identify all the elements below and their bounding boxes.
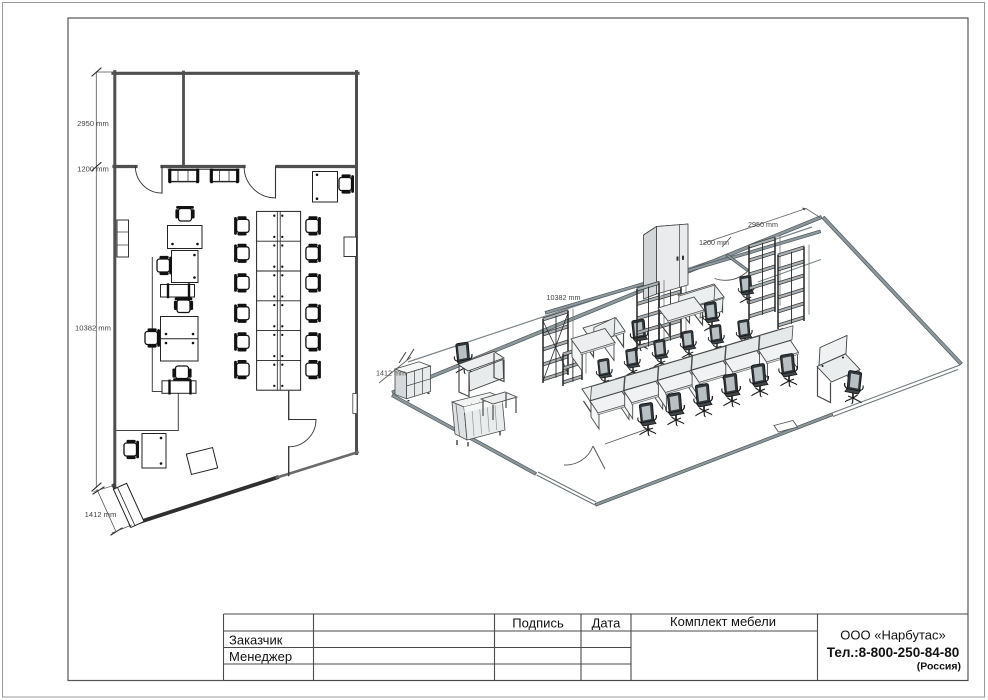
svg-text:Дата: Дата [592,616,622,631]
svg-text:Менеджер: Менеджер [229,649,292,664]
svg-text:Заказчик: Заказчик [229,633,283,648]
svg-text:ООО «Нарбутас»: ООО «Нарбутас» [840,628,945,643]
svg-text:10382 mm: 10382 mm [75,324,111,333]
svg-text:Комплект мебели: Комплект мебели [670,614,776,629]
svg-text:2950 mm: 2950 mm [77,119,109,128]
svg-text:10382 mm: 10382 mm [547,293,581,302]
svg-text:1200 mm: 1200 mm [699,238,729,247]
svg-text:1412 mm: 1412 mm [85,510,117,519]
svg-text:1200 mm: 1200 mm [77,165,109,174]
svg-text:1412 mm: 1412 mm [376,369,406,378]
svg-text:2950 mm: 2950 mm [748,220,778,229]
svg-text:(Россия): (Россия) [917,661,961,673]
svg-text:Тел.:8-800-250-84-80: Тел.:8-800-250-84-80 [827,645,959,660]
svg-text:Подпись: Подпись [512,616,564,631]
